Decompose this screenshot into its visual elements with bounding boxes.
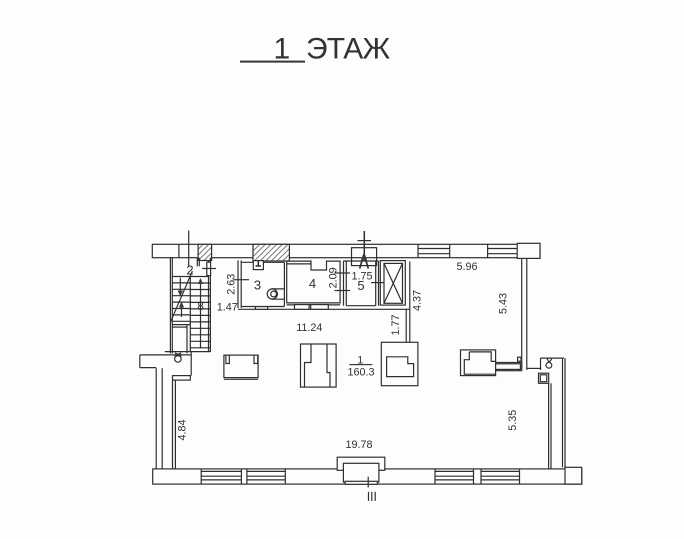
svg-text:2.09: 2.09 xyxy=(327,267,339,288)
svg-text:5.96: 5.96 xyxy=(456,261,477,273)
svg-text:4.37: 4.37 xyxy=(412,290,424,311)
svg-text:5.35: 5.35 xyxy=(507,410,519,431)
svg-text:19.78: 19.78 xyxy=(345,439,372,451)
svg-text:2: 2 xyxy=(186,263,193,278)
svg-text:1: 1 xyxy=(274,33,291,66)
svg-text:3: 3 xyxy=(254,278,261,293)
svg-text:160.3: 160.3 xyxy=(347,367,374,379)
svg-text:ЭТАЖ: ЭТАЖ xyxy=(306,33,391,66)
svg-text:2.63: 2.63 xyxy=(226,274,238,295)
svg-text:1.77: 1.77 xyxy=(390,314,402,335)
svg-text:5.43: 5.43 xyxy=(498,293,510,314)
svg-text:11.24: 11.24 xyxy=(296,322,322,334)
svg-text:8: 8 xyxy=(197,299,204,313)
svg-text:4: 4 xyxy=(309,276,316,291)
svg-text:1.47: 1.47 xyxy=(217,302,238,314)
svg-text:4.84: 4.84 xyxy=(176,419,188,440)
svg-text:1.75: 1.75 xyxy=(351,270,372,282)
